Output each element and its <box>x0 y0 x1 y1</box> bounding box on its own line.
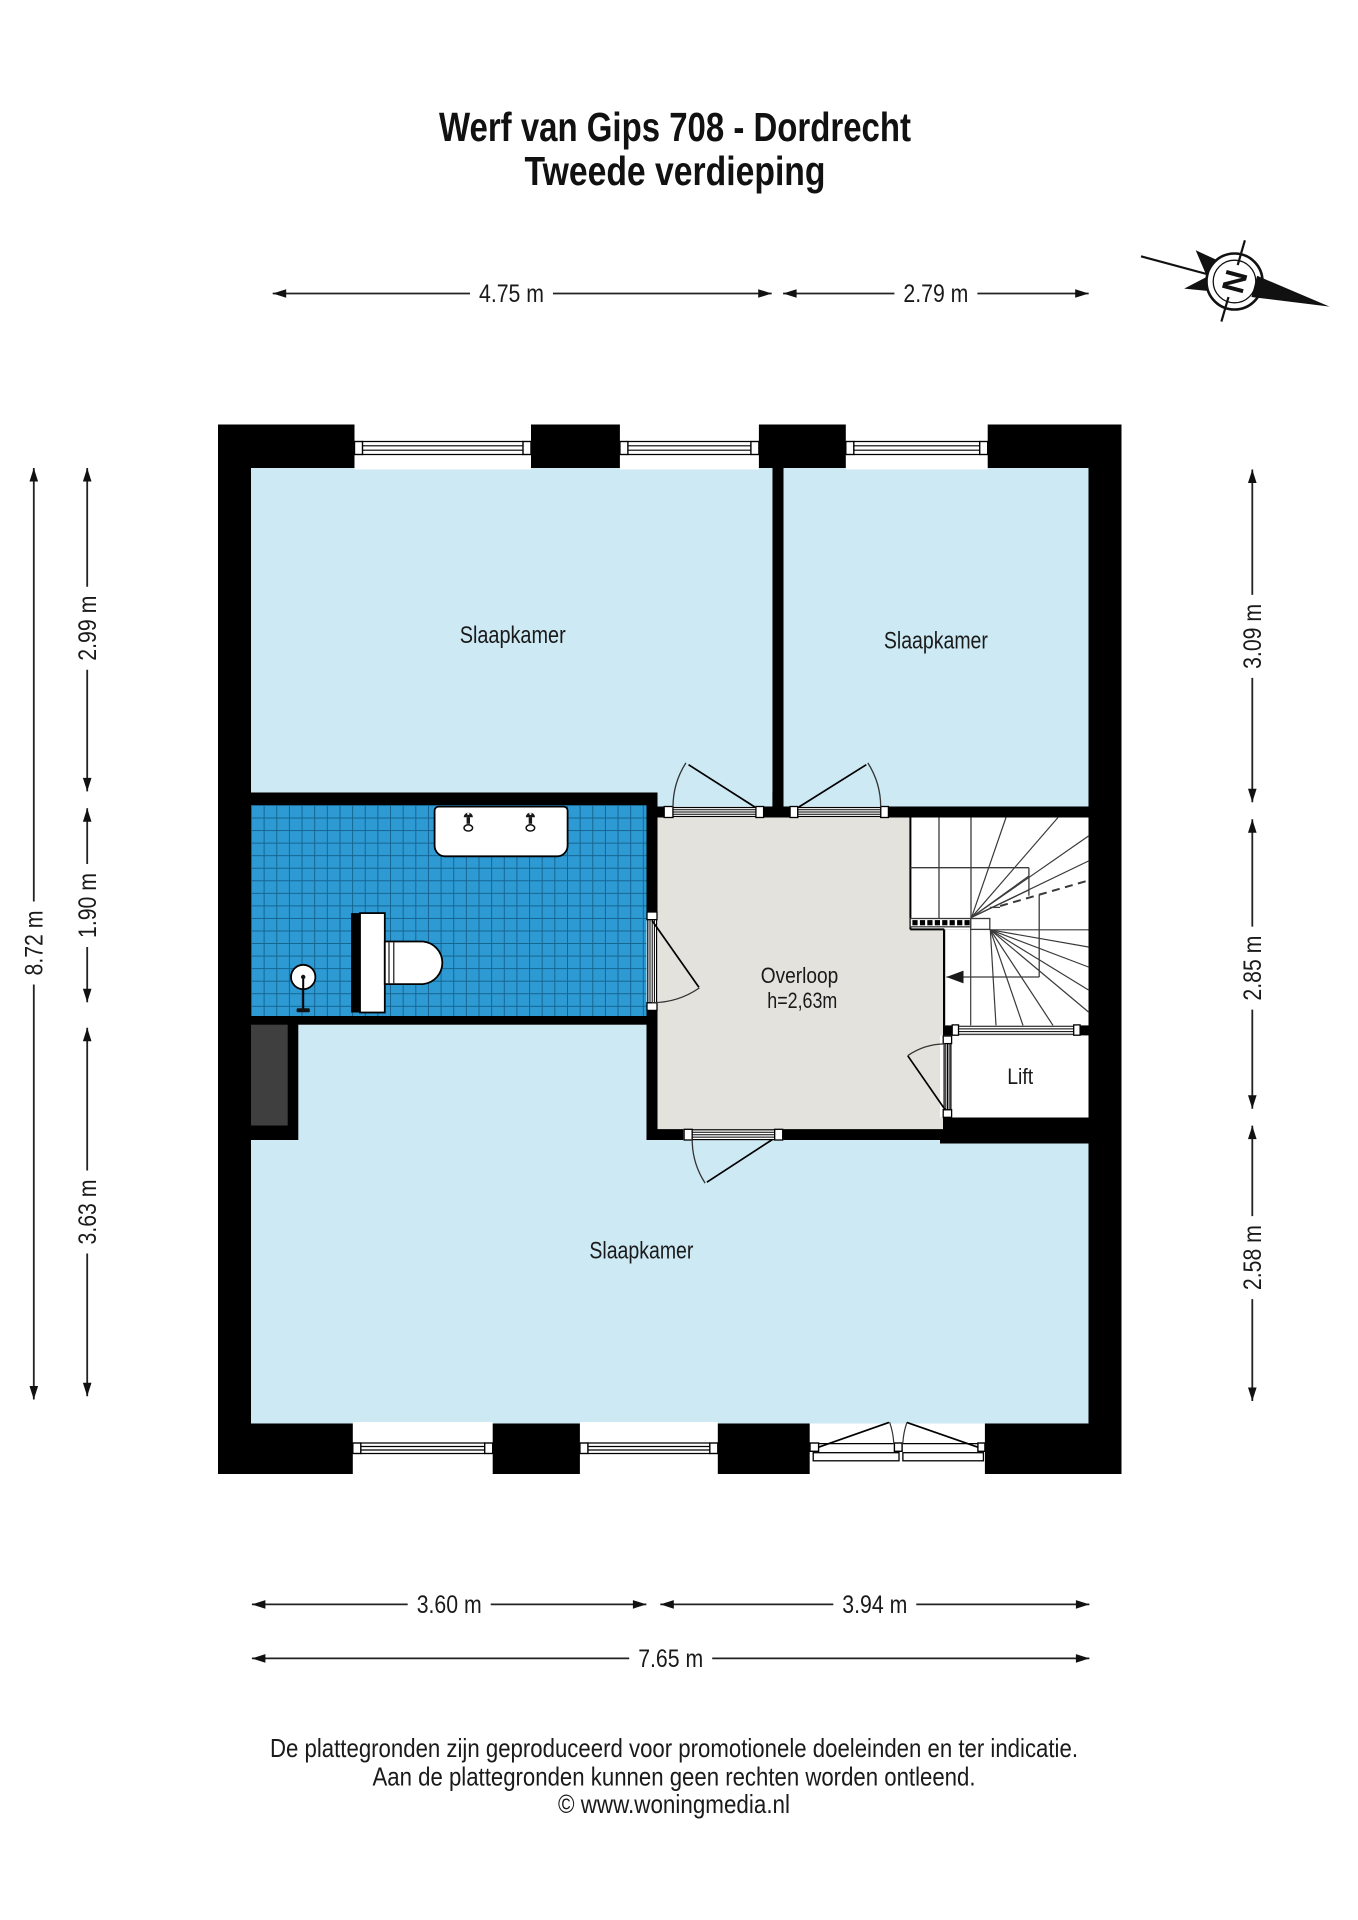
svg-text:4.75 m: 4.75 m <box>479 280 544 308</box>
svg-text:© www.woningmedia.nl: © www.woningmedia.nl <box>558 1789 790 1819</box>
svg-text:h=2,63m: h=2,63m <box>767 988 837 1013</box>
svg-text:1.90 m: 1.90 m <box>74 873 102 938</box>
svg-text:8.72 m: 8.72 m <box>20 911 48 976</box>
svg-text:Slaapkamer: Slaapkamer <box>884 628 988 655</box>
svg-text:3.60 m: 3.60 m <box>417 1591 482 1619</box>
svg-text:2.79 m: 2.79 m <box>903 280 968 308</box>
svg-text:Slaapkamer: Slaapkamer <box>589 1238 693 1265</box>
svg-text:2.99 m: 2.99 m <box>74 596 102 661</box>
svg-text:3.63 m: 3.63 m <box>74 1180 102 1245</box>
svg-text:De plattegronden zijn geproduc: De plattegronden zijn geproduceerd voor … <box>270 1733 1078 1763</box>
svg-text:3.94 m: 3.94 m <box>842 1591 907 1619</box>
svg-text:Werf van Gips 708 - Dordrecht: Werf van Gips 708 - Dordrecht <box>439 104 911 150</box>
svg-text:7.65 m: 7.65 m <box>638 1645 703 1673</box>
svg-text:Overloop: Overloop <box>761 963 839 988</box>
svg-text:Slaapkamer: Slaapkamer <box>460 622 566 649</box>
svg-text:Aan de plattegronden kunnen ge: Aan de plattegronden kunnen geen rechten… <box>373 1761 976 1791</box>
svg-text:3.09 m: 3.09 m <box>1239 604 1267 669</box>
svg-text:Lift: Lift <box>1007 1064 1033 1089</box>
svg-text:Tweede verdieping: Tweede verdieping <box>525 148 826 194</box>
svg-text:2.85 m: 2.85 m <box>1239 936 1267 1001</box>
svg-text:2.58 m: 2.58 m <box>1239 1225 1267 1290</box>
